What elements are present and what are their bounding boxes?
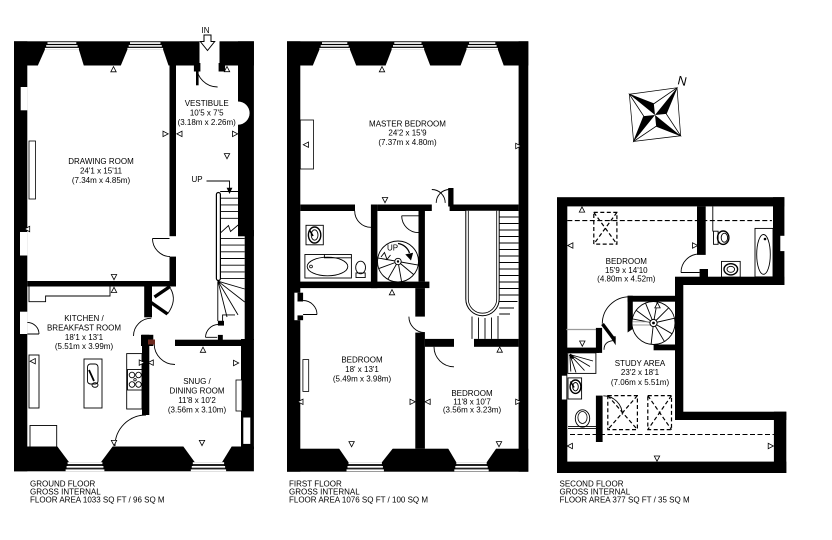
svg-text:MASTER BEDROOM: MASTER BEDROOM <box>369 119 446 128</box>
svg-text:KITCHEN /: KITCHEN / <box>64 314 104 323</box>
svg-text:SNUG /: SNUG / <box>183 377 211 386</box>
svg-text:(5.49m x 3.98m): (5.49m x 3.98m) <box>333 374 392 383</box>
svg-text:BREAKFAST ROOM: BREAKFAST ROOM <box>47 323 121 332</box>
svg-text:BEDROOM: BEDROOM <box>341 356 383 365</box>
svg-text:FLOOR AREA 1076 SQ FT / 100 SQ: FLOOR AREA 1076 SQ FT / 100 SQ M <box>289 495 428 504</box>
svg-text:IN: IN <box>202 26 210 35</box>
svg-text:BEDROOM: BEDROOM <box>606 257 648 266</box>
svg-text:(7.37m x 4.80m): (7.37m x 4.80m) <box>378 138 437 147</box>
svg-text:18' x 13'1: 18' x 13'1 <box>345 365 379 374</box>
svg-text:(3.56m x 3.23m): (3.56m x 3.23m) <box>443 406 502 415</box>
svg-text:23'2 x 18'1: 23'2 x 18'1 <box>621 368 660 377</box>
svg-text:VESTIBULE: VESTIBULE <box>185 99 229 108</box>
svg-text:(3.18m x 2.26m): (3.18m x 2.26m) <box>178 118 237 127</box>
svg-text:DINING ROOM: DINING ROOM <box>169 387 224 396</box>
svg-text:(7.34m x 4.85m): (7.34m x 4.85m) <box>72 176 131 185</box>
svg-text:STUDY AREA: STUDY AREA <box>615 359 666 368</box>
svg-text:11'8 x 10'2: 11'8 x 10'2 <box>178 396 216 405</box>
svg-text:FLOOR AREA 1033 SQ FT / 96 SQ: FLOOR AREA 1033 SQ FT / 96 SQ M <box>30 495 165 504</box>
svg-text:(4.80m x 4.52m): (4.80m x 4.52m) <box>597 275 656 284</box>
svg-text:FLOOR AREA 377 SQ FT / 35 SQ M: FLOOR AREA 377 SQ FT / 35 SQ M <box>560 495 690 504</box>
svg-text:24'1 x 15'11: 24'1 x 15'11 <box>80 167 123 176</box>
svg-text:18'1 x 13'1: 18'1 x 13'1 <box>65 333 104 342</box>
svg-text:24'2 x 15'9: 24'2 x 15'9 <box>388 129 427 138</box>
svg-text:(7.06m x 5.51m): (7.06m x 5.51m) <box>611 378 670 387</box>
svg-text:10'5 x 7'5: 10'5 x 7'5 <box>190 108 224 117</box>
svg-text:(5.51m x 3.99m): (5.51m x 3.99m) <box>55 342 114 351</box>
svg-text:(3.56m x 3.10m): (3.56m x 3.10m) <box>168 405 227 414</box>
svg-text:UP: UP <box>387 244 398 253</box>
svg-text:DRAWING ROOM: DRAWING ROOM <box>68 157 134 166</box>
svg-text:UP: UP <box>192 175 203 184</box>
